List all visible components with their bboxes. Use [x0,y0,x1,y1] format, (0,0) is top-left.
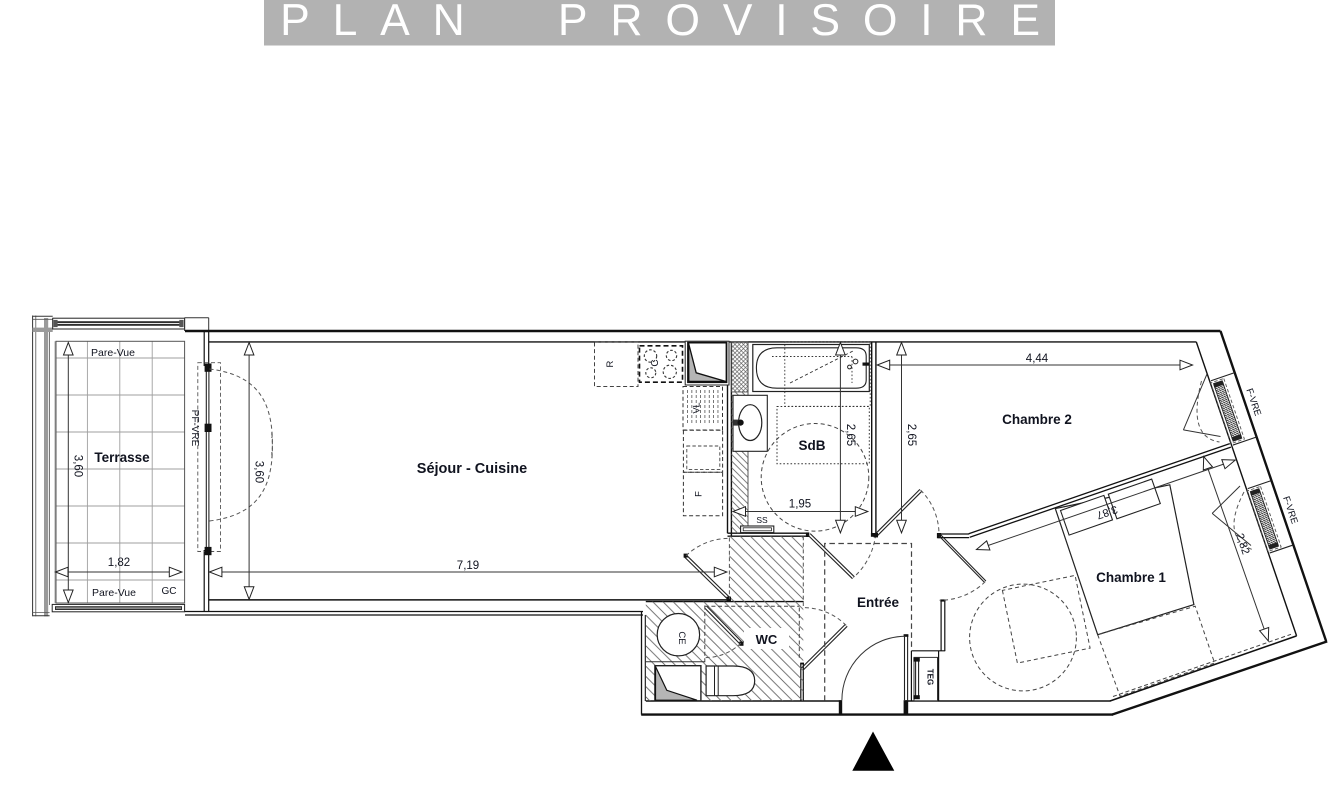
svg-text:Pare-Vue: Pare-Vue [92,587,136,599]
svg-text:PF-VRE: PF-VRE [189,410,200,447]
svg-text:R: R [605,360,616,367]
svg-text:1,95: 1,95 [789,499,811,511]
svg-text:Chambre 2: Chambre 2 [1002,412,1072,427]
svg-text:CE: CE [676,631,687,644]
svg-text:Terrasse: Terrasse [94,450,150,465]
svg-text:2,65: 2,65 [844,424,856,446]
svg-text:3,60: 3,60 [71,455,83,477]
svg-text:2,82: 2,82 [1233,532,1251,556]
svg-text:3,60: 3,60 [252,461,264,483]
svg-text:F: F [694,491,705,497]
svg-text:TEG: TEG [926,669,935,685]
svg-text:C: C [650,359,661,366]
svg-text:SS: SS [756,515,768,525]
svg-text:1,82: 1,82 [108,557,130,569]
svg-text:PLAN PROVISOIRE: PLAN PROVISOIRE [280,0,1063,45]
svg-text:Chambre 1: Chambre 1 [1096,570,1166,585]
svg-text:7,19: 7,19 [457,560,479,572]
svg-text:4,44: 4,44 [1026,353,1049,365]
svg-text:Séjour - Cuisine: Séjour - Cuisine [417,461,527,477]
svg-text:GC: GC [162,586,177,597]
svg-text:SdB: SdB [799,438,826,453]
svg-text:VL: VL [692,402,702,413]
svg-text:WC: WC [756,632,778,647]
svg-text:2,65: 2,65 [905,424,917,446]
svg-text:Pare-Vue: Pare-Vue [91,347,135,359]
svg-text:Entrée: Entrée [857,595,900,610]
